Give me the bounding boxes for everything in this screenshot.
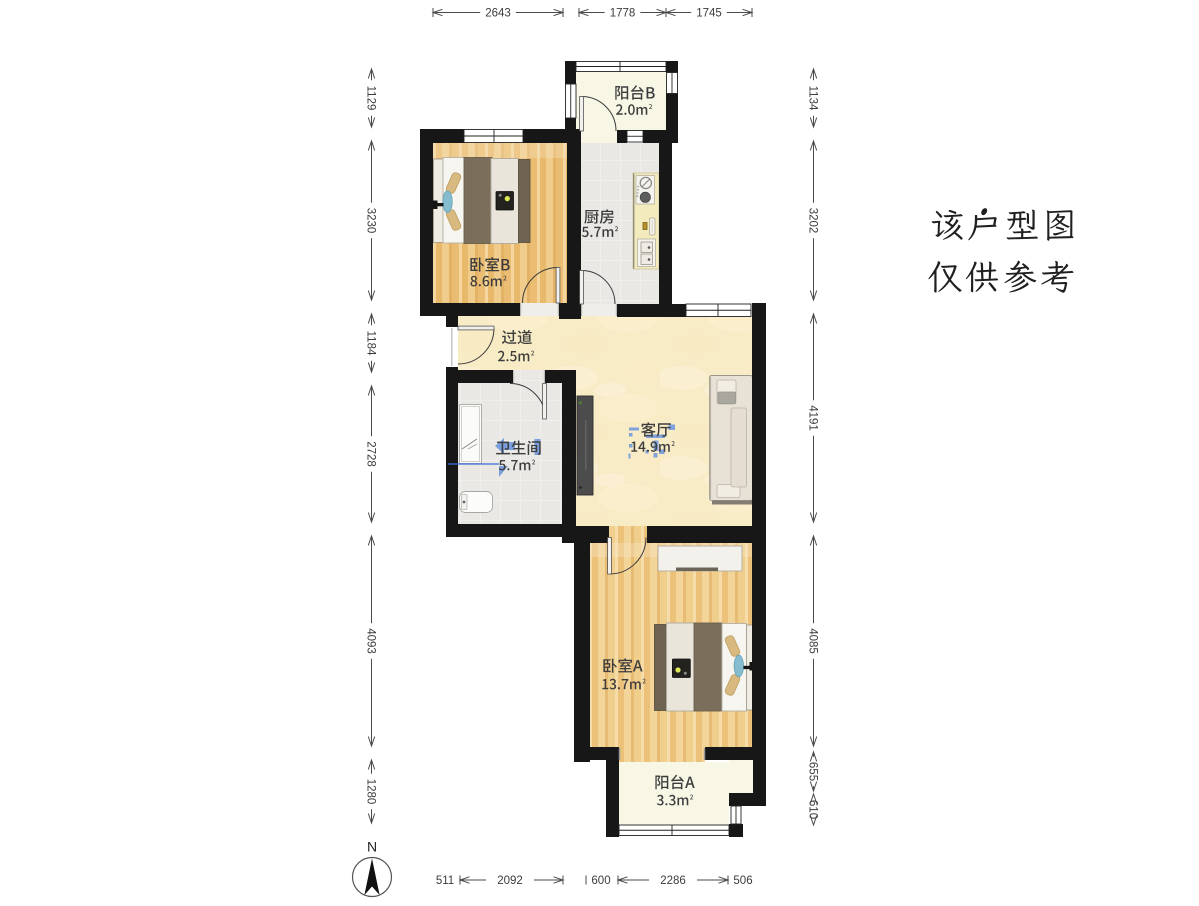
svg-text:506: 506: [733, 875, 752, 887]
svg-text:511: 511: [436, 875, 454, 887]
svg-text:2728: 2728: [364, 441, 376, 467]
svg-text:1129: 1129: [364, 86, 376, 111]
svg-text:1134: 1134: [806, 86, 818, 111]
svg-text:610: 610: [806, 800, 818, 819]
svg-text:3202: 3202: [806, 208, 818, 234]
svg-text:N: N: [367, 839, 377, 855]
svg-text:600: 600: [591, 875, 610, 887]
svg-text:655: 655: [806, 762, 818, 781]
svg-text:2286: 2286: [660, 875, 686, 887]
svg-text:2092: 2092: [497, 875, 523, 887]
svg-text:1745: 1745: [696, 8, 722, 20]
svg-text:4191: 4191: [806, 405, 818, 431]
svg-text:4085: 4085: [806, 628, 818, 654]
svg-text:4093: 4093: [364, 628, 376, 654]
svg-text:1280: 1280: [364, 779, 376, 805]
svg-text:1184: 1184: [364, 331, 376, 356]
svg-text:1778: 1778: [610, 8, 636, 20]
svg-text:2643: 2643: [485, 8, 511, 20]
svg-text:3230: 3230: [364, 208, 376, 234]
